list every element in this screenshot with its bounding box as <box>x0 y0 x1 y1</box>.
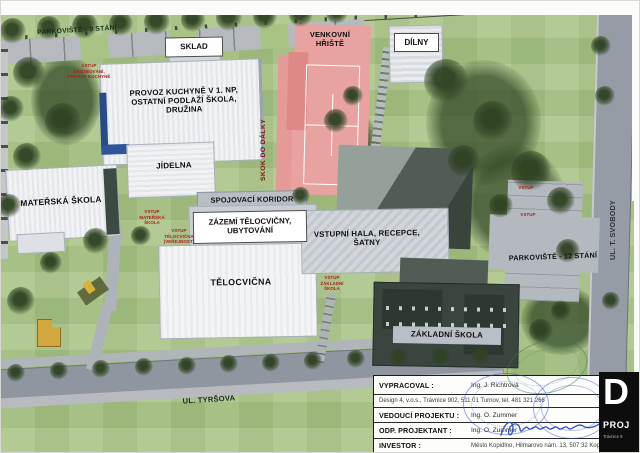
tree-icon <box>547 187 575 215</box>
sandbox <box>37 319 61 347</box>
tree-icon <box>220 355 238 373</box>
tree-icon <box>45 103 81 139</box>
tree-icon <box>7 287 35 315</box>
paper-edge-right <box>632 1 640 201</box>
vstup-materska-note: VSTUP MATEŘSKÁ ŠKOLA <box>135 209 169 226</box>
tree-icon <box>551 301 571 321</box>
row-label: INVESTOR : <box>379 441 471 450</box>
tree-icon <box>13 143 41 171</box>
row-value: Město Kopidlno, Hilmarovo nám. 13, 507 3… <box>471 443 613 449</box>
label-box-dilny: DÍLNY <box>394 33 439 52</box>
tree-icon <box>7 364 25 382</box>
tree-icon <box>131 226 151 246</box>
tree-icon <box>262 354 280 372</box>
tree-icon <box>83 228 109 254</box>
tree-icon <box>92 360 110 378</box>
row-label: ODP. PROJEKTANT : <box>379 426 471 435</box>
label-box-sklad: SKLAD <box>165 36 223 57</box>
logo-line2: Trávnice 9 <box>603 434 622 439</box>
label-zakladni: ZÁKLADNÍ ŠKOLA <box>395 329 499 340</box>
label-zazemi: ZÁZEMÍ TĚLOCVIČNY, UBYTOVÁNÍ <box>208 217 291 236</box>
row-label: VYPRACOVAL : <box>379 381 471 390</box>
row-label: VEDOUCÍ PROJEKTU : <box>379 411 471 420</box>
tree-icon <box>473 101 513 141</box>
fence-left <box>1 49 8 259</box>
label-vstupni-hala: VSTUPNÍ HALA, RECEPCE, ŠATNY <box>307 228 427 248</box>
building-telocvicna <box>158 243 318 340</box>
tree-icon <box>343 86 363 106</box>
tree-icon <box>489 194 513 218</box>
tree-icon <box>602 292 620 310</box>
site-plan-scan: PARKOVIŠTĚ - 9 STÁNÍ SKOK DO DÁLKY VENKO… <box>0 0 640 453</box>
label-koridor: SPOJOVACÍ KORIDOR <box>199 195 305 206</box>
tree-icon <box>424 59 468 103</box>
tree-icon <box>595 86 615 106</box>
tree-icon <box>472 347 490 365</box>
design4-logo: D PROJ Trávnice 9 <box>599 372 640 453</box>
vstup-telocvicna-note: VSTUP TĚLOCVIČNA (VEŘEJNOST) <box>159 228 199 245</box>
tree-icon <box>432 348 450 366</box>
tree-icon <box>13 57 45 89</box>
parking-12-lot <box>488 214 600 273</box>
label-telocvicna: TĚLOCVIČNA <box>201 276 281 288</box>
vstup-zakladni-note: VSTUP ZÁKLADNÍ ŠKOLA <box>315 275 349 292</box>
label-skok-do-dalky: SKOK DO DÁLKY <box>260 97 268 202</box>
tree-icon <box>304 352 322 370</box>
label-venkovni-hriste: VENKOVNÍ HŘIŠTĚ <box>297 31 363 48</box>
tree-icon <box>591 36 611 56</box>
tree-icon <box>40 252 62 274</box>
tree-icon <box>135 358 153 376</box>
kitchen-accent <box>99 93 108 148</box>
label-box-zazemi: ZÁZEMÍ TĚLOCVIČNY, UBYTOVÁNÍ <box>193 210 308 244</box>
vstup-parking-note: VSTUP <box>513 185 539 191</box>
logo-line1: PROJ <box>603 420 630 430</box>
logo-letter: D <box>603 374 629 410</box>
tree-icon <box>0 96 24 122</box>
tree-icon <box>178 357 196 375</box>
vstup-parking-note: VSTUP <box>515 212 541 218</box>
label-dilny: DÍLNY <box>405 38 429 47</box>
tree-icon <box>390 349 408 367</box>
tree-icon <box>448 145 480 177</box>
tree-icon <box>50 362 68 380</box>
paper-margin-top <box>1 1 640 15</box>
label-sklad: SKLAD <box>180 42 208 52</box>
label-provoz-kuchyne: PROVOZ KUCHYNĚ V 1. NP, OSTATNÍ PODLAŽÍ … <box>119 85 250 117</box>
signature <box>497 413 605 443</box>
building-materska-annex <box>17 232 66 254</box>
tree-icon <box>347 350 365 368</box>
tree-icon <box>324 109 348 133</box>
vstup-kuchyne-note: VSTUP ZÁSOBOVÁNÍ, PROVOZ KUCHYNĚ <box>65 63 113 80</box>
street-name-svobody: UL. T. SVOBODY <box>609 175 617 285</box>
tree-icon <box>0 18 26 44</box>
